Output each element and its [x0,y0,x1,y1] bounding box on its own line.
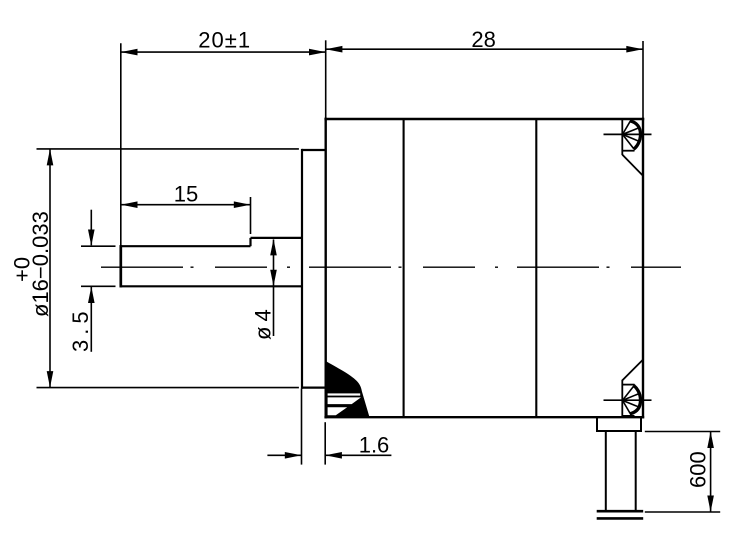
svg-text:ø4: ø4 [251,304,276,340]
svg-text:ø16−0.033: ø16−0.033 [28,211,53,317]
svg-text:1.6: 1.6 [359,432,390,457]
svg-text:3.5: 3.5 [68,306,93,352]
svg-text:600: 600 [686,451,711,488]
svg-text:15: 15 [174,182,198,207]
svg-text:28: 28 [471,27,495,52]
svg-text:20±1: 20±1 [198,28,251,53]
